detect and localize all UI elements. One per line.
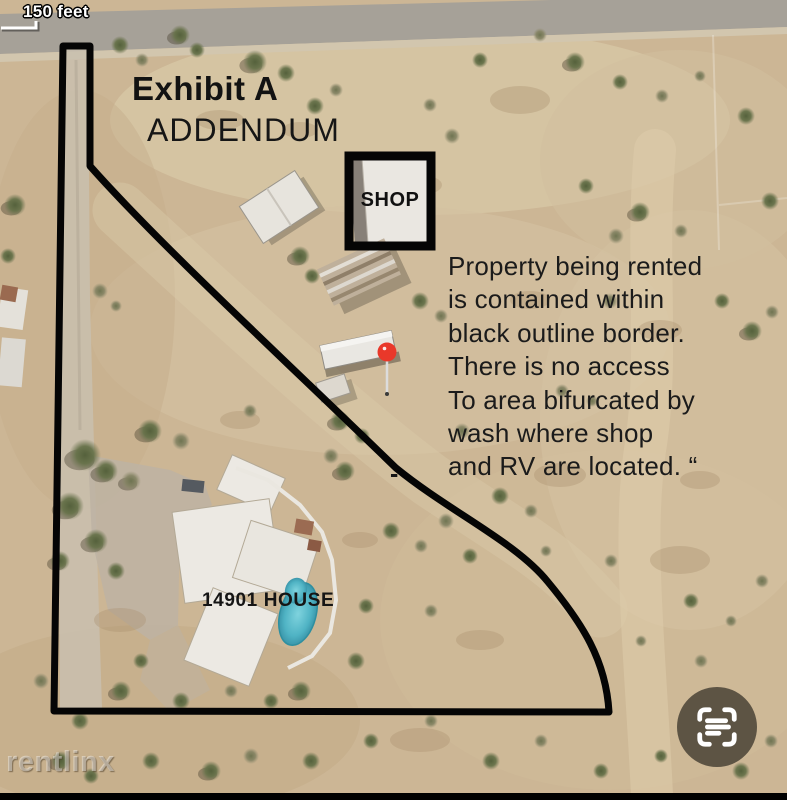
car	[181, 479, 204, 493]
neighbor-building	[0, 337, 26, 387]
scale-label: 150 feet	[23, 2, 89, 22]
aerial-map-exhibit: 150 feet Exhibit A ADDENDUM SHOP Propert…	[0, 0, 787, 800]
dash-annotation: -	[390, 460, 398, 489]
scan-text-icon	[694, 704, 740, 750]
patio	[307, 539, 322, 552]
property-note: Property being rented is contained withi…	[448, 250, 778, 484]
exhibit-title: Exhibit A	[132, 70, 278, 108]
bottom-letterbox-bar	[0, 793, 787, 800]
neighbor-roof	[0, 285, 18, 303]
rentlinx-watermark: rentlinx	[6, 746, 115, 779]
shop-label: SHOP	[344, 151, 436, 249]
house-label: 14901 HOUSE	[202, 590, 334, 612]
scan-text-button[interactable]	[677, 687, 757, 767]
exhibit-subtitle: ADDENDUM	[147, 112, 340, 149]
